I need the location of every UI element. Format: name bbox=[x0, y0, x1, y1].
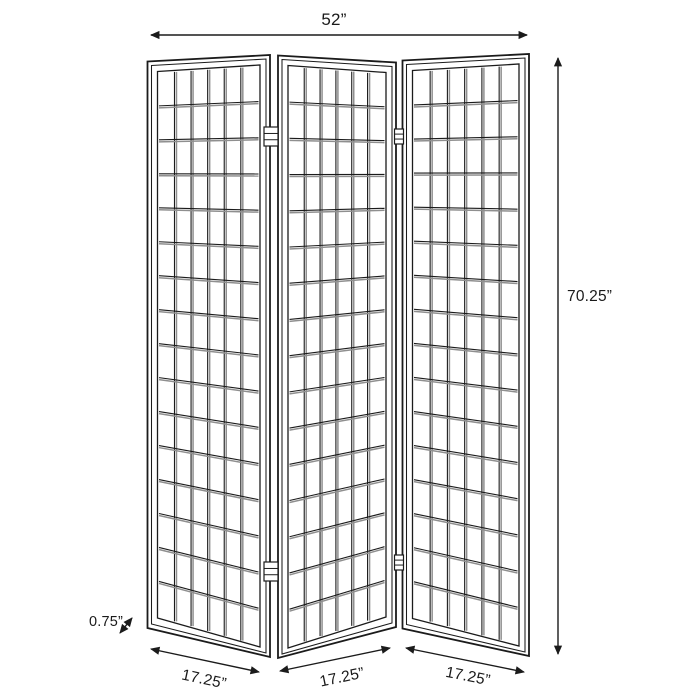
room-divider-dimension-diagram: 52” 70.25” 0.75” 17.25” 17.25” 17.25” bbox=[0, 0, 700, 700]
depth-dimension-label: 0.75” bbox=[89, 614, 123, 630]
hinge-icon bbox=[264, 562, 278, 581]
panel2-width-dimension: 17.25” bbox=[280, 648, 390, 691]
height-dimension: 70.25” bbox=[558, 58, 612, 654]
panel2-width-label: 17.25” bbox=[318, 665, 366, 691]
diagram-canvas: 52” 70.25” 0.75” 17.25” 17.25” 17.25” bbox=[0, 0, 700, 700]
panel1-width-arrow bbox=[151, 649, 259, 672]
depth-dimension: 0.75” bbox=[89, 614, 132, 633]
width-dimension-label: 52” bbox=[321, 10, 346, 29]
panel1-width-label: 17.25” bbox=[180, 667, 228, 693]
hinge-icon bbox=[264, 127, 278, 146]
panel-2 bbox=[278, 56, 396, 659]
hinge-icon bbox=[395, 555, 404, 570]
width-dimension: 52” bbox=[151, 10, 527, 35]
panel1-width-dimension: 17.25” bbox=[151, 649, 259, 693]
panel3-width-label: 17.25” bbox=[444, 664, 492, 690]
panel-3 bbox=[403, 54, 530, 656]
hinge-icon bbox=[395, 129, 404, 144]
height-dimension-label: 70.25” bbox=[567, 288, 612, 305]
panel-1 bbox=[148, 55, 271, 657]
panel3-width-dimension: 17.25” bbox=[406, 648, 524, 689]
folding-screen bbox=[148, 54, 530, 658]
